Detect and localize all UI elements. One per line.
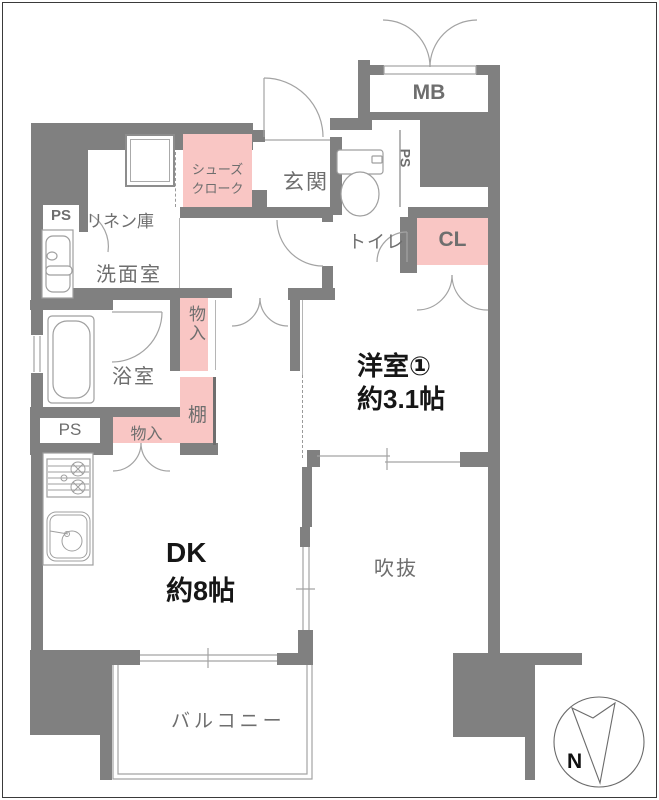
storage-door-arc bbox=[141, 443, 170, 471]
shelf-label: 棚 bbox=[188, 400, 207, 427]
west-room-name: 洋室① bbox=[357, 346, 431, 383]
closet-cl-label: CL bbox=[417, 228, 488, 252]
storage-door-arc bbox=[113, 443, 141, 471]
pipe-space-label-shaft: PS bbox=[397, 149, 413, 168]
bathtub-inner bbox=[53, 321, 90, 398]
dk-name: DK bbox=[166, 537, 206, 569]
mb-door-arc bbox=[430, 20, 477, 67]
cl-door-arc bbox=[417, 275, 452, 310]
toilet-knob bbox=[372, 156, 382, 163]
west-room-size: 約3.1帖 bbox=[357, 379, 445, 416]
washbasin-bowl bbox=[46, 236, 70, 292]
toilet-label: トイレ bbox=[348, 228, 405, 254]
storage-label-upper: 物入 bbox=[183, 305, 208, 343]
void-label: 吹抜 bbox=[374, 552, 418, 581]
plan-linework bbox=[0, 0, 659, 800]
compass-north-label: N bbox=[567, 750, 582, 774]
dk-size: 約8帖 bbox=[166, 569, 235, 608]
mb-door-arc bbox=[383, 20, 430, 67]
cl-door-arc bbox=[452, 275, 488, 310]
pipe-space-label-mid: PS bbox=[40, 420, 100, 440]
washbasin-faucet bbox=[47, 252, 57, 260]
shoes-closet-label-line1: シューズ bbox=[183, 159, 252, 178]
linen-label: リネン庫 bbox=[86, 207, 154, 232]
washbasin-handle bbox=[46, 266, 72, 275]
west-room-door-arc bbox=[277, 220, 323, 266]
shoes-closet-label-line2: クローク bbox=[183, 178, 252, 197]
pipe-space-label-top: PS bbox=[43, 207, 79, 224]
mb-threshold bbox=[384, 66, 476, 74]
bath-label: 浴室 bbox=[112, 360, 156, 389]
washroom-label: 洗面室 bbox=[96, 258, 162, 287]
entrance-label: 玄関 bbox=[283, 166, 329, 196]
meter-box-label: MB bbox=[370, 81, 488, 105]
floorplan-canvas: PS リネン庫 洗面室 シューズ クローク 玄関 トイレ MB PS CL 浴室… bbox=[0, 0, 659, 800]
entrance-door-arc bbox=[264, 78, 323, 137]
hall-door-arc bbox=[232, 298, 260, 326]
storage-label-lower: 物入 bbox=[113, 420, 180, 444]
hall-door-arc bbox=[260, 298, 288, 326]
bath-door-arc bbox=[112, 312, 162, 362]
balcony-label: バルコニー bbox=[171, 706, 286, 733]
toilet-bowl bbox=[341, 172, 379, 216]
